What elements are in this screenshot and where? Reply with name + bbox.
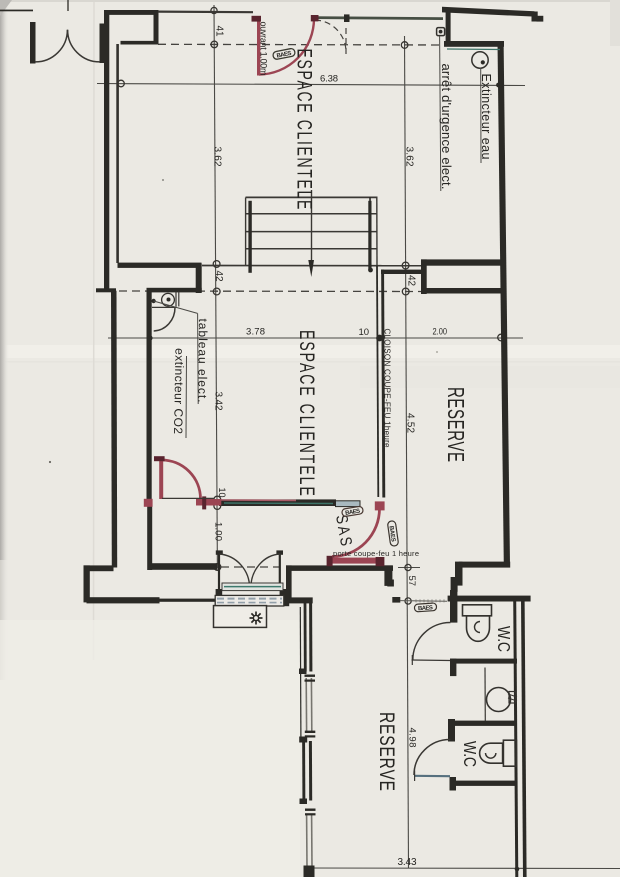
- svg-text:6.38: 6.38: [320, 74, 338, 85]
- svg-text:3.62: 3.62: [212, 147, 223, 167]
- svg-text:BAES: BAES: [418, 605, 433, 612]
- svg-text:4.52: 4.52: [405, 413, 416, 433]
- svg-text:porte coupe-feu 1 heure: porte coupe-feu 1 heure: [333, 549, 419, 558]
- svg-text:CLOISON COUPE-FEU 1heure: CLOISON COUPE-FEU 1heure: [383, 329, 392, 449]
- svg-text:W.C: W.C: [494, 626, 513, 652]
- svg-text:1.00: 1.00: [213, 522, 224, 541]
- svg-text:tableau elect.: tableau elect.: [195, 318, 210, 402]
- svg-text:ouvrant 1.00m: ouvrant 1.00m: [259, 22, 269, 76]
- svg-text:W.C: W.C: [460, 741, 479, 767]
- svg-text:Extincteur eau: Extincteur eau: [479, 74, 493, 160]
- svg-text:41: 41: [214, 26, 225, 38]
- svg-text:42: 42: [406, 275, 417, 287]
- svg-text:ESPACE CLIENTELE: ESPACE CLIENTELE: [295, 330, 320, 496]
- svg-text:4.98: 4.98: [407, 728, 418, 748]
- svg-text:10: 10: [359, 327, 370, 338]
- svg-text:RESERVE: RESERVE: [375, 712, 399, 791]
- svg-text:arrêt d'urgence elect.: arrêt d'urgence elect.: [439, 64, 454, 190]
- svg-text:3.42: 3.42: [213, 392, 224, 411]
- svg-text:RESERVE: RESERVE: [442, 387, 468, 462]
- svg-text:ESPACE CLIENTELE: ESPACE CLIENTELE: [293, 49, 317, 210]
- svg-text:3.43: 3.43: [398, 857, 417, 868]
- svg-text:3.78: 3.78: [246, 327, 265, 338]
- svg-text:57: 57: [406, 576, 417, 587]
- svg-text:10: 10: [217, 488, 227, 498]
- svg-text:extincteur CO2: extincteur CO2: [171, 348, 187, 435]
- svg-text:3.62: 3.62: [404, 147, 415, 167]
- svg-text:42: 42: [213, 271, 224, 283]
- svg-text:2.00: 2.00: [433, 327, 448, 338]
